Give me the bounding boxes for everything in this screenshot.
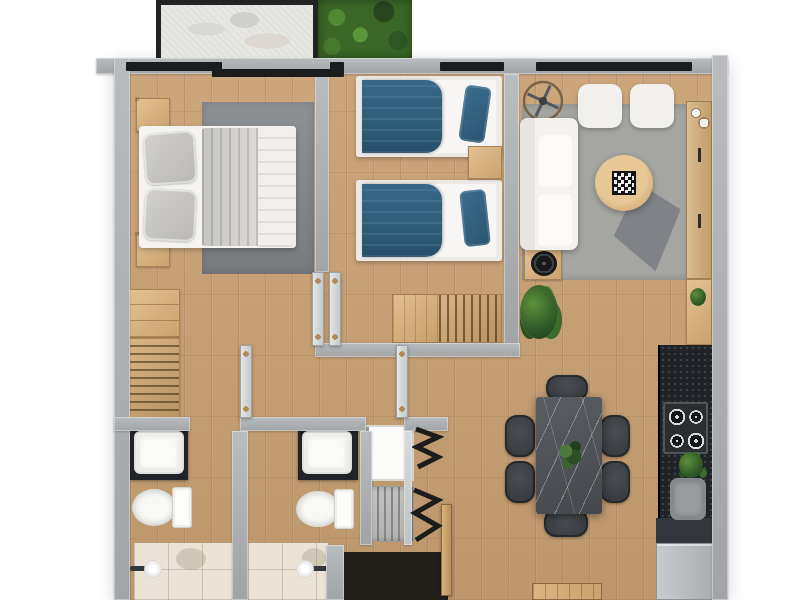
- door-bathroom2: [396, 345, 408, 418]
- sideboard: [686, 101, 712, 279]
- dining-chair: [600, 461, 630, 503]
- blanket: [202, 128, 264, 246]
- toilet-tank: [334, 489, 354, 529]
- door-master-bedroom: [312, 272, 324, 346]
- wall-left: [114, 58, 130, 600]
- teal-duvet: [362, 184, 442, 257]
- bathroom-sink: [134, 431, 184, 474]
- wardrobe-clothes-rail: [128, 338, 180, 420]
- entry-opening: [342, 552, 448, 600]
- coffee-table: [595, 155, 653, 211]
- side-table: [524, 245, 562, 280]
- bifold-door-icon: [412, 426, 444, 470]
- window-living-room: [536, 62, 692, 71]
- window-bedroom2: [440, 62, 504, 71]
- towel-roll: [144, 560, 162, 578]
- wall-bathroom1-top: [114, 417, 190, 431]
- twin-bed: [356, 76, 502, 157]
- chessboard: [612, 171, 636, 195]
- armchair: [630, 84, 674, 128]
- wall-master-bedroom2: [315, 74, 329, 272]
- towel-roll: [296, 560, 314, 578]
- dining-chair: [600, 415, 630, 457]
- dining-chair: [505, 461, 535, 503]
- dining-chair: [505, 415, 535, 457]
- ceiling-fan-icon: [521, 79, 565, 123]
- wall-bedroom2-bottom: [315, 343, 520, 357]
- shower-drain-shadow: [176, 548, 206, 570]
- door-bedroom2: [329, 272, 341, 346]
- twin-bed: [356, 180, 502, 261]
- door-bathroom1: [240, 345, 252, 418]
- grass-patch: [318, 0, 412, 58]
- wall-bedroom2-living: [504, 74, 519, 345]
- sofa-backrest: [520, 118, 535, 250]
- teal-duvet: [362, 80, 442, 153]
- sliding-door-frame: [126, 62, 222, 71]
- sliding-door-frame: [212, 69, 344, 77]
- sofa: [520, 118, 578, 250]
- wardrobe-shelf: [393, 295, 439, 342]
- wardrobe-clothes-rail: [439, 295, 501, 342]
- wall-right: [712, 55, 728, 600]
- gas-hob: [663, 402, 708, 454]
- duvet: [258, 127, 296, 247]
- toilet-bowl: [132, 489, 176, 526]
- floor-plan: [0, 0, 800, 600]
- armchair: [578, 84, 622, 128]
- dresser: [128, 289, 180, 338]
- wooden-doormat: [532, 583, 602, 600]
- nightstand: [468, 146, 502, 179]
- sofa-cushion: [536, 133, 574, 189]
- turntable: [531, 251, 557, 276]
- bifold-door-icon: [410, 486, 444, 544]
- pillow: [143, 188, 198, 243]
- counter-plant: [679, 452, 703, 478]
- table-centerpiece-plant: [553, 436, 585, 474]
- pillow: [142, 130, 198, 186]
- counter-shadow: [656, 518, 712, 544]
- toilet-tank: [172, 487, 192, 528]
- small-plant: [690, 288, 706, 306]
- bathroom-sink: [302, 431, 352, 474]
- wall-bathroom-divider: [232, 431, 248, 600]
- potted-plant: [520, 285, 558, 339]
- refrigerator: [656, 543, 714, 600]
- kitchen-sink: [670, 478, 706, 520]
- wardrobe: [392, 294, 502, 343]
- sofa-cushion: [536, 192, 574, 248]
- wall-laundry-left: [360, 431, 372, 545]
- door-frame-mark: [330, 62, 344, 72]
- wall-bathroom2-top: [240, 417, 366, 431]
- wall-entry-stub: [326, 545, 344, 600]
